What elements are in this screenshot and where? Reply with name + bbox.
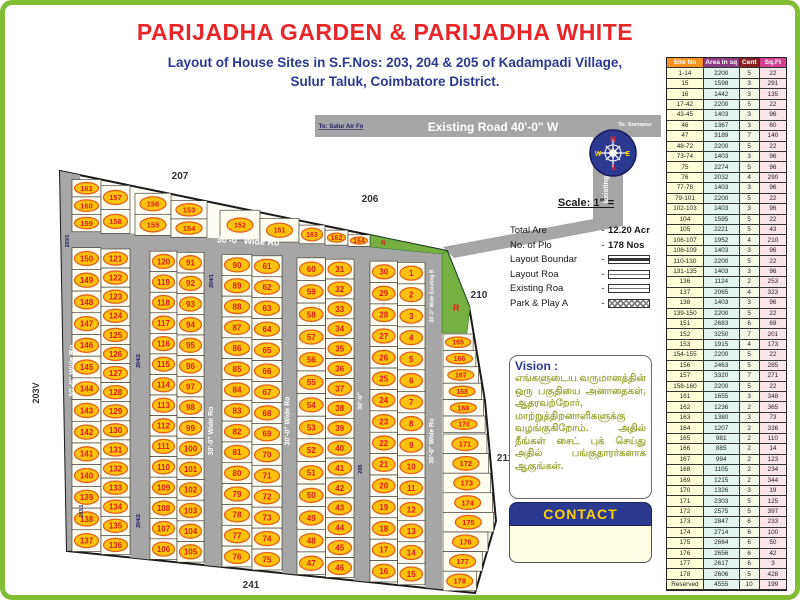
table-cell: 1442: [704, 89, 740, 99]
table-row: 106-10719524210: [667, 235, 786, 245]
table-cell: 19: [760, 486, 786, 496]
road-label: 204/1: [209, 274, 215, 288]
plot-number-18: 18: [379, 524, 388, 533]
table-cell: 5: [740, 162, 760, 172]
plot-number-22: 22: [379, 439, 388, 448]
park-label: R: [381, 240, 386, 247]
site-area-table: Site NoArea in sqCentSq.Ft1-142200522151…: [666, 57, 787, 591]
table-cell: 22: [760, 256, 786, 266]
contact-button[interactable]: CONTACT: [509, 502, 652, 526]
table-cell: 3: [740, 246, 760, 256]
plot-number-167: 167: [455, 373, 467, 380]
plot-number-3: 3: [409, 312, 414, 321]
column-header: Site No: [667, 58, 704, 68]
plot-number-36: 36: [335, 364, 344, 373]
table-cell: 4: [740, 235, 760, 245]
plot-number-60: 60: [307, 265, 316, 274]
table-cell: 2606: [704, 569, 740, 579]
table-cell: 104: [667, 215, 704, 225]
table-row: 16412072336: [667, 423, 786, 433]
plot-number-57: 57: [307, 333, 316, 342]
table-cell: 2032: [704, 173, 740, 183]
table-cell: 2303: [704, 496, 740, 506]
table-row: 1631380373: [667, 413, 786, 423]
plot-number-173: 173: [461, 479, 474, 488]
table-cell: 96: [760, 298, 786, 308]
plot-number-41: 41: [335, 464, 344, 473]
plot-number-124: 124: [109, 312, 123, 321]
plot-number-106: 106: [157, 545, 171, 554]
legend-row: Layout Roa-: [510, 269, 662, 280]
plot-number-54: 54: [307, 401, 316, 410]
legend-row: Existing Roa-: [510, 283, 662, 294]
table-cell: 176: [667, 549, 704, 559]
survey-label: 241: [243, 580, 260, 591]
table-cell: 14: [760, 444, 786, 454]
table-row: 1752664650: [667, 538, 786, 548]
table-cell: 106-107: [667, 235, 704, 245]
table-cell: 6: [740, 538, 760, 548]
table-cell: 173: [760, 340, 786, 350]
table-row: 16811052234: [667, 465, 786, 475]
table-cell: 139-150: [667, 309, 704, 319]
table-cell: 47: [667, 131, 704, 141]
legend-swatch-road: [608, 284, 650, 293]
table-cell: 5: [740, 496, 760, 506]
table-cell: 4: [740, 340, 760, 350]
plot-number-108: 108: [157, 504, 171, 513]
table-cell: 76: [667, 173, 704, 183]
table-cell: 140: [760, 131, 786, 141]
plot-number-30: 30: [379, 268, 388, 277]
compass-n: N: [610, 135, 616, 144]
table-cell: 2656: [704, 549, 740, 559]
plot-number-153: 153: [183, 206, 196, 215]
table-cell: 2200: [704, 100, 740, 110]
plot-number-112: 112: [157, 422, 170, 431]
table-cell: Reserved: [667, 580, 704, 590]
plot-number-8: 8: [409, 419, 414, 428]
table-cell: 3: [740, 121, 760, 131]
plot-number-99: 99: [186, 424, 195, 433]
plot-number-75: 75: [263, 555, 272, 564]
legend-dash: -: [598, 240, 608, 251]
table-cell: 135: [760, 89, 786, 99]
park-label: R: [453, 303, 460, 313]
plot-number-21: 21: [379, 460, 388, 469]
table-cell: 164: [667, 423, 704, 433]
table-cell: 1403: [704, 152, 740, 162]
table-cell: 172: [667, 507, 704, 517]
plot-number-10: 10: [407, 462, 416, 471]
table-cell: 3: [760, 559, 786, 569]
plot-number-1: 1: [409, 269, 414, 278]
plot-number-17: 17: [379, 546, 388, 555]
table-cell: 22: [760, 382, 786, 392]
table-row: 73-741403396: [667, 152, 786, 162]
plot-number-69: 69: [263, 430, 272, 439]
plot-number-128: 128: [109, 388, 123, 397]
table-cell: 2200: [704, 194, 740, 204]
table-cell: 6: [740, 549, 760, 559]
plot-number-140: 140: [80, 471, 94, 480]
table-cell: 2: [740, 423, 760, 433]
table-cell: 323: [760, 288, 786, 298]
plot-number-67: 67: [263, 388, 272, 397]
plot-number-132: 132: [109, 464, 123, 473]
table-cell: 177: [667, 559, 704, 569]
plot-number-85: 85: [233, 365, 242, 374]
plot-number-101: 101: [184, 465, 198, 474]
table-cell: 171: [667, 496, 704, 506]
plot-number-145: 145: [80, 363, 94, 372]
plot-number-55: 55: [307, 378, 316, 387]
plot-number-131: 131: [109, 445, 123, 454]
table-cell: 5: [740, 309, 760, 319]
plot-number-46: 46: [335, 563, 344, 572]
plot-number-104: 104: [184, 527, 198, 536]
table-cell: 173: [667, 517, 704, 527]
table-cell: 2200: [704, 382, 740, 392]
table-cell: 157: [667, 371, 704, 381]
plot-number-144: 144: [80, 385, 94, 394]
table-row: 7620324290: [667, 173, 786, 183]
table-cell: 162: [667, 402, 704, 412]
table-cell: 3: [740, 79, 760, 89]
table-cell: 1403: [704, 110, 740, 120]
table-row: 166885214: [667, 444, 786, 454]
existing-road-label: Existing Road 40'-0" W: [428, 120, 559, 134]
table-cell: 3189: [704, 131, 740, 141]
plot-number-97: 97: [186, 382, 195, 391]
plot-number-98: 98: [186, 403, 195, 412]
plot-number-73: 73: [263, 514, 272, 523]
table-cell: 2200: [704, 309, 740, 319]
road-label: 203/1: [65, 235, 71, 248]
table-cell: 3250: [704, 329, 740, 339]
legend-value: 12.20 Acr: [608, 225, 650, 236]
table-cell: 1655: [704, 392, 740, 402]
plot-number-66: 66: [263, 367, 272, 376]
plot-number-137: 137: [80, 537, 94, 546]
table-cell: 96: [760, 267, 786, 277]
legend-label: No. of Plo: [510, 240, 598, 251]
park-strip-right: [442, 251, 470, 333]
plot-number-13: 13: [407, 527, 416, 536]
table-cell: 1380: [704, 413, 740, 423]
plot-number-78: 78: [233, 511, 242, 520]
table-row: 102-1031403396: [667, 204, 786, 214]
table-row: 1041595522: [667, 215, 786, 225]
plot-number-2: 2: [409, 290, 414, 299]
plot-number-142: 142: [80, 428, 94, 437]
table-row: 15624635285: [667, 361, 786, 371]
plot-number-79: 79: [233, 490, 242, 499]
legend-dash: -: [598, 269, 608, 280]
page-title: PARIJADHA GARDEN & PARIJADHA WHITE: [5, 19, 765, 46]
road-label: 204/2: [136, 354, 142, 368]
table-cell: 348: [760, 392, 786, 402]
plot-number-80: 80: [233, 469, 242, 478]
table-cell: 1403: [704, 298, 740, 308]
table-cell: 2: [740, 465, 760, 475]
plot-number-89: 89: [233, 282, 242, 291]
table-row: 4731897140: [667, 131, 786, 141]
plot-number-96: 96: [186, 362, 195, 371]
plot-number-32: 32: [335, 285, 344, 294]
table-row: 1052221543: [667, 225, 786, 235]
plot-number-35: 35: [335, 345, 344, 354]
plot-number-58: 58: [307, 310, 316, 319]
table-cell: 1915: [704, 340, 740, 350]
legend-label: Total Are: [510, 225, 598, 236]
table-cell: 136: [667, 277, 704, 287]
table-cell: 46: [667, 121, 704, 131]
plot-number-68: 68: [263, 409, 272, 418]
plot-number-125: 125: [109, 331, 123, 340]
table-cell: 6: [740, 319, 760, 329]
plot-number-105: 105: [184, 548, 198, 557]
plot-number-176: 176: [459, 538, 472, 547]
compass-e: E: [626, 151, 631, 158]
table-cell: 73-74: [667, 152, 704, 162]
table-cell: 167: [667, 455, 704, 465]
survey-label: 207: [172, 171, 189, 182]
plot-number-29: 29: [379, 289, 388, 298]
plot-number-61: 61: [263, 262, 272, 271]
table-cell: 110: [760, 434, 786, 444]
plot-number-169: 169: [457, 405, 469, 412]
road-label: 204/2: [136, 514, 142, 528]
plot-number-151: 151: [274, 228, 286, 235]
table-cell: 199: [760, 580, 786, 590]
table-cell: 22: [760, 350, 786, 360]
table-cell: 2: [740, 476, 760, 486]
plot-number-127: 127: [109, 369, 123, 378]
table-row: Reserved455510199: [667, 580, 786, 590]
plot-number-84: 84: [233, 386, 242, 395]
table-row: 16116553348: [667, 392, 786, 402]
road-label: 30'-0": [357, 392, 364, 410]
table-cell: 1124: [704, 277, 740, 287]
plot-number-160: 160: [80, 201, 93, 210]
table-cell: 3: [740, 89, 760, 99]
table-cell: 60: [760, 121, 786, 131]
table-cell: 2200: [704, 256, 740, 266]
table-cell: 2617: [704, 559, 740, 569]
plot-number-177: 177: [456, 557, 469, 566]
plot-number-157: 157: [109, 193, 122, 202]
table-cell: 22: [760, 100, 786, 110]
plot-number-19: 19: [379, 503, 388, 512]
table-cell: 1403: [704, 267, 740, 277]
table-cell: 5: [740, 507, 760, 517]
plot-number-77: 77: [233, 532, 242, 541]
plot-number-12: 12: [407, 505, 416, 514]
table-cell: 43: [760, 225, 786, 235]
table-row: 131-1351403396: [667, 267, 786, 277]
compass-w: W: [595, 151, 602, 158]
table-cell: 3: [740, 413, 760, 423]
table-row: 1512683669: [667, 319, 786, 329]
table-cell: 96: [760, 204, 786, 214]
road-label: 30'-0" Wide Ro: [285, 397, 292, 446]
table-cell: 2200: [704, 142, 740, 152]
plot-number-135: 135: [109, 522, 123, 531]
table-cell: 137: [667, 288, 704, 298]
table-cell: 3: [740, 183, 760, 193]
plot-number-70: 70: [263, 451, 272, 460]
table-cell: 5: [740, 382, 760, 392]
table-cell: 96: [760, 152, 786, 162]
table-cell: 7: [740, 371, 760, 381]
plot-number-164: 164: [353, 238, 365, 245]
plot-number-168: 168: [456, 389, 468, 396]
table-cell: 43-45: [667, 110, 704, 120]
table-cell: 7: [740, 329, 760, 339]
legend-row: No. of Plo-178 Nos: [510, 240, 662, 251]
table-cell: 290: [760, 173, 786, 183]
plot-number-74: 74: [263, 534, 272, 543]
table-cell: 285: [760, 361, 786, 371]
legend-label: Park & Play A: [510, 298, 598, 309]
table-cell: 1598: [704, 79, 740, 89]
table-cell: 397: [760, 507, 786, 517]
legend-label: Existing Roa: [510, 283, 598, 294]
table-cell: 210: [760, 235, 786, 245]
table-cell: 253: [760, 277, 786, 287]
plot-number-119: 119: [157, 278, 170, 287]
table-cell: 156: [667, 361, 704, 371]
table-cell: 5: [740, 361, 760, 371]
plot-number-152: 152: [234, 223, 246, 230]
contact-box: CONTACT: [509, 502, 652, 563]
plot-number-14: 14: [407, 548, 416, 557]
table-cell: 2065: [704, 288, 740, 298]
plot-number-107: 107: [157, 524, 171, 533]
plot-number-100: 100: [184, 444, 198, 453]
table-cell: 6: [740, 559, 760, 569]
table-cell: 885: [704, 444, 740, 454]
table-row: 48-722200522: [667, 142, 786, 152]
road-label: 30'-0" Wide Existing R: [430, 269, 436, 322]
table-cell: 291: [760, 79, 786, 89]
plot-number-49: 49: [307, 514, 316, 523]
table-cell: 174: [667, 528, 704, 538]
plot-number-94: 94: [186, 321, 195, 330]
table-cell: 2664: [704, 538, 740, 548]
table-cell: 6: [740, 528, 760, 538]
layout-poster: PARIJADHA GARDEN & PARIJADHA WHITE Layou…: [0, 0, 800, 600]
survey-label: 210: [471, 290, 488, 301]
table-cell: 271: [760, 371, 786, 381]
scale-label: Scale: 1" =: [510, 197, 662, 209]
plot-number-147: 147: [80, 319, 94, 328]
table-cell: 178: [667, 569, 704, 579]
table-cell: 169: [667, 476, 704, 486]
table-row: 752274596: [667, 162, 786, 172]
survey-label: 206: [362, 194, 379, 205]
column-header: Cent: [740, 58, 760, 68]
plot-number-92: 92: [186, 279, 195, 288]
plot-number-53: 53: [307, 423, 316, 432]
plot-number-139: 139: [80, 493, 94, 502]
table-cell: 131-135: [667, 267, 704, 277]
plot-number-121: 121: [109, 254, 123, 263]
plot-number-28: 28: [379, 310, 388, 319]
table-row: 15319154173: [667, 340, 786, 350]
plot-number-95: 95: [186, 341, 195, 350]
table-cell: 5: [740, 256, 760, 266]
legend-dash: -: [598, 283, 608, 294]
table-row: 461367360: [667, 121, 786, 131]
table-cell: 69: [760, 319, 786, 329]
plot-number-114: 114: [157, 381, 170, 390]
table-row: 1515983291: [667, 79, 786, 89]
table-cell: 42: [760, 549, 786, 559]
plot-number-111: 111: [157, 442, 170, 451]
table-cell: 50: [760, 538, 786, 548]
plot-number-134: 134: [109, 503, 123, 512]
plot-number-48: 48: [307, 536, 316, 545]
table-row: 1381403396: [667, 298, 786, 308]
plot-number-90: 90: [233, 261, 242, 270]
table-cell: 4: [740, 288, 760, 298]
plot-number-130: 130: [109, 426, 123, 435]
table-cell: 96: [760, 110, 786, 120]
table-cell: 2274: [704, 162, 740, 172]
plot-number-31: 31: [335, 265, 344, 274]
plot-number-148: 148: [80, 298, 94, 307]
plot-number-37: 37: [335, 384, 344, 393]
road-vertical-0: [130, 234, 150, 559]
plot-number-143: 143: [80, 406, 94, 415]
table-cell: 5: [740, 215, 760, 225]
plot-number-39: 39: [335, 424, 344, 433]
legend-dash: -: [598, 298, 608, 309]
table-cell: 5: [740, 68, 760, 78]
plot-number-163: 163: [306, 232, 318, 239]
plot-number-62: 62: [263, 283, 272, 292]
legend-swatch-hatch: [608, 299, 650, 308]
table-cell: 16: [667, 89, 704, 99]
vision-box: Vision : எங்களுடைய வருமானத்தின் ஒரு பகுத…: [509, 355, 652, 499]
plot-number-26: 26: [379, 353, 388, 362]
table-cell: 1207: [704, 423, 740, 433]
table-cell: 336: [760, 423, 786, 433]
plot-number-170: 170: [458, 422, 470, 429]
plot-number-129: 129: [109, 407, 123, 416]
road-label: 30'-0" Wide Ro: [429, 418, 436, 463]
table-cell: 2: [740, 434, 760, 444]
plot-number-6: 6: [409, 376, 414, 385]
plot-number-110: 110: [157, 463, 170, 472]
table-header-row: Site NoArea in sqCentSq.Ft: [667, 58, 786, 68]
plot-number-115: 115: [157, 360, 170, 369]
plot-number-113: 113: [157, 401, 170, 410]
to-sulur-label: To: Sulur Air Fo: [319, 124, 364, 130]
table-cell: 22: [760, 68, 786, 78]
legend-value: 178 Nos: [608, 240, 644, 251]
plot-number-23: 23: [379, 417, 388, 426]
road-label: 203V: [31, 382, 41, 403]
table-cell: 154-155: [667, 350, 704, 360]
plot-number-116: 116: [157, 339, 170, 348]
table-cell: 152: [667, 329, 704, 339]
legend-label: Layout Boundar: [510, 254, 598, 265]
plot-number-155: 155: [147, 220, 160, 229]
plot-number-76: 76: [233, 552, 242, 561]
